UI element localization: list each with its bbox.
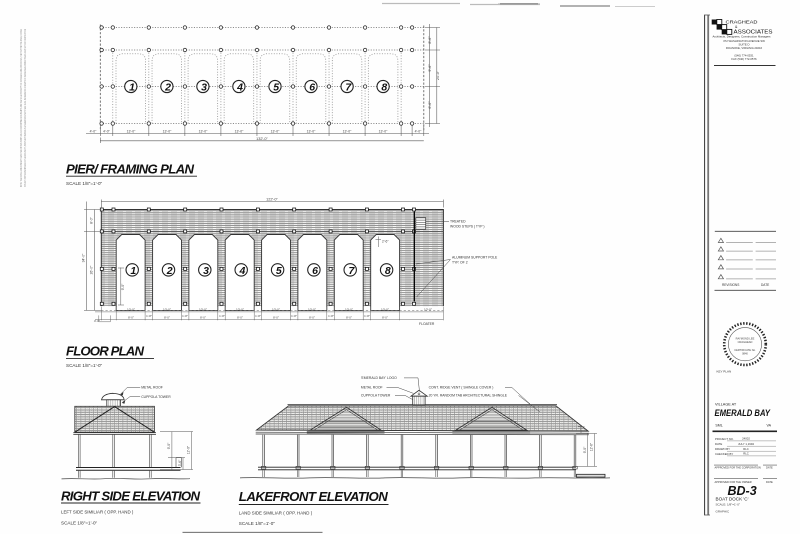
svg-text:9'-0": 9'-0" <box>167 442 171 449</box>
svg-text:CUPPOLA TOWER: CUPPOLA TOWER <box>361 394 391 398</box>
svg-text:PROJECT NO.: PROJECT NO. <box>715 437 734 441</box>
svg-text:9'-0": 9'-0" <box>583 446 587 453</box>
svg-text:SCALE 1/8"=1'-0": SCALE 1/8"=1'-0" <box>66 181 103 186</box>
svg-text:JULY 1,1994: JULY 1,1994 <box>738 442 754 446</box>
svg-text:13'-0": 13'-0" <box>163 130 172 134</box>
svg-text:6: 6 <box>309 81 315 93</box>
svg-text:9'-6": 9'-6" <box>428 64 432 72</box>
svg-text:CHECKED BY: CHECKED BY <box>715 452 733 456</box>
svg-text:6: 6 <box>312 265 318 277</box>
svg-text:SML: SML <box>715 423 722 427</box>
svg-text:CRAGHEAD: CRAGHEAD <box>738 340 753 344</box>
svg-text:RLC: RLC <box>743 452 749 456</box>
svg-text:SCALE 1/8"=1'-0": SCALE 1/8"=1'-0" <box>61 520 98 525</box>
svg-text:1'-8": 1'-8" <box>146 314 152 318</box>
svg-text:CUPPOLA TOWER: CUPPOLA TOWER <box>141 395 171 399</box>
svg-text:8'-0": 8'-0" <box>346 316 352 320</box>
svg-text:8'-0": 8'-0" <box>237 316 243 320</box>
svg-text:10'-0": 10'-0" <box>381 308 389 312</box>
svg-text:8'-0": 8'-0" <box>128 316 134 320</box>
svg-text:10'-0": 10'-0" <box>424 308 432 312</box>
svg-text:CERTIFICATE No.: CERTIFICATE No. <box>734 348 756 352</box>
svg-text:WOOD STEPS ( TYP ): WOOD STEPS ( TYP ) <box>450 224 485 228</box>
svg-text:26'-0": 26'-0" <box>90 265 94 274</box>
svg-text:LEFT SIDE SIMILIAR ( OPP. HAND: LEFT SIDE SIMILIAR ( OPP. HAND ) <box>61 509 134 514</box>
svg-text:TYP. OF 2: TYP. OF 2 <box>452 260 468 264</box>
svg-text:34'-0": 34'-0" <box>82 253 86 262</box>
svg-text:SCALE: 1/8"=1'-0": SCALE: 1/8"=1'-0" <box>716 502 740 506</box>
svg-text:13'-0": 13'-0" <box>127 130 136 134</box>
svg-text:ASSOCIATES: ASSOCIATES <box>734 29 773 35</box>
svg-text:13'-0": 13'-0" <box>307 130 316 134</box>
svg-text:3: 3 <box>201 81 207 93</box>
svg-text:BOAT DOCK 'C': BOAT DOCK 'C' <box>716 497 749 502</box>
svg-text:12'-6": 12'-6" <box>590 442 594 451</box>
svg-text:8'-0": 8'-0" <box>164 316 170 320</box>
svg-text:4'-0": 4'-0" <box>415 130 423 134</box>
svg-text:24002: 24002 <box>742 437 750 441</box>
svg-text:1'-8": 1'-8" <box>364 314 370 318</box>
svg-text:LAKEFRONT ELEVATION: LAKEFRONT ELEVATION <box>239 489 388 504</box>
svg-text:4'-0": 4'-0" <box>103 130 111 134</box>
svg-text:WITHOUT WRITTEN PERMISSION OF: WITHOUT WRITTEN PERMISSION OF THE ARCHIT… <box>23 29 27 187</box>
svg-text:132'-0": 132'-0" <box>256 137 268 141</box>
svg-text:10'-0": 10'-0" <box>345 308 353 312</box>
svg-text:8: 8 <box>385 265 391 277</box>
svg-text:DATE: DATE <box>715 442 722 446</box>
svg-text:8'-0": 8'-0" <box>90 216 94 224</box>
svg-text:RAYMOND LEE: RAYMOND LEE <box>736 337 755 341</box>
svg-text:8'-0": 8'-0" <box>382 316 388 320</box>
svg-text:1'-8": 1'-8" <box>328 314 334 318</box>
svg-text:TREATED: TREATED <box>450 219 466 223</box>
svg-text:SCALE 1/8"=1'-0": SCALE 1/8"=1'-0" <box>239 521 276 526</box>
svg-text:12'-0": 12'-0" <box>186 445 190 454</box>
svg-text:FLOATER: FLOATER <box>419 322 435 326</box>
svg-text:3'-6": 3'-6" <box>178 459 182 466</box>
svg-text:EMERALD BAY: EMERALD BAY <box>715 408 771 418</box>
svg-text:8'-0": 8'-0" <box>200 316 206 320</box>
svg-text:5: 5 <box>273 81 279 93</box>
svg-text:2: 2 <box>164 81 171 93</box>
svg-text:10'-0": 10'-0" <box>199 308 207 312</box>
svg-text:4: 4 <box>238 265 245 277</box>
svg-text:FLOOR PLAN: FLOOR PLAN <box>66 344 144 359</box>
svg-text:1'-8": 1'-8" <box>255 314 261 318</box>
svg-text:8: 8 <box>381 81 387 93</box>
svg-text:4: 4 <box>236 81 243 93</box>
svg-text:13'-0": 13'-0" <box>235 130 244 134</box>
svg-text:KEY PLAN: KEY PLAN <box>717 369 732 373</box>
svg-text:10'-0": 10'-0" <box>236 308 244 312</box>
svg-text:METAL ROOF: METAL ROOF <box>141 386 163 390</box>
svg-text:GRAPHIC: GRAPHIC <box>716 510 731 514</box>
svg-text:13'-0": 13'-0" <box>271 130 280 134</box>
svg-text:ROANOKE, VIRGINIA 24016: ROANOKE, VIRGINIA 24016 <box>726 46 763 50</box>
svg-text:'EMERALD BAY' LOGO: 'EMERALD BAY' LOGO <box>361 376 397 380</box>
svg-text:LAND SIDE SIMILIAR ( OPP. HAND: LAND SIDE SIMILIAR ( OPP. HAND ) <box>239 511 313 516</box>
svg-text:REVISIONS: REVISIONS <box>722 283 739 287</box>
svg-text:8'-6": 8'-6" <box>428 36 432 44</box>
svg-text:4'-0": 4'-0" <box>94 319 100 323</box>
svg-text:20 YR. RANDOM TAB ARCHITECTURA: 20 YR. RANDOM TAB ARCHITECTURAL SHINGLE <box>429 394 508 398</box>
svg-text:1'-8": 1'-8" <box>219 314 225 318</box>
svg-text:4'-0": 4'-0" <box>90 130 98 134</box>
svg-text:DATE: DATE <box>761 283 769 287</box>
svg-text:RLC: RLC <box>743 447 749 451</box>
svg-text:ALUMINUM SUPPORT POLE: ALUMINUM SUPPORT POLE <box>452 255 498 259</box>
svg-text:DRAWN BY: DRAWN BY <box>715 447 730 451</box>
svg-text:6'-0": 6'-0" <box>428 101 432 109</box>
svg-text:DATE: DATE <box>766 480 773 484</box>
svg-text:VA: VA <box>767 423 772 427</box>
svg-text:8'-0": 8'-0" <box>309 316 315 320</box>
svg-text:CONT. RIDGE VENT ( SHINGLE COV: CONT. RIDGE VENT ( SHINGLE COVER ) <box>429 386 494 390</box>
svg-text:1: 1 <box>130 265 136 277</box>
svg-text:1'-8": 1'-8" <box>182 314 188 318</box>
svg-text:3: 3 <box>203 265 209 277</box>
svg-text:DATE: DATE <box>766 466 773 470</box>
svg-text:8'-0": 8'-0" <box>273 316 279 320</box>
svg-text:VILLAGE AT: VILLAGE AT <box>715 402 737 406</box>
svg-text:10'-0": 10'-0" <box>308 308 316 312</box>
svg-text:PIER/ FRAMING PLAN: PIER/ FRAMING PLAN <box>66 162 194 177</box>
svg-text:2: 2 <box>166 265 173 277</box>
svg-text:10'-0": 10'-0" <box>127 308 135 312</box>
svg-text:SCALE 1/8"=1'-0": SCALE 1/8"=1'-0" <box>66 363 103 368</box>
svg-text:2'-6": 2'-6" <box>382 240 389 244</box>
svg-text:METAL ROOF: METAL ROOF <box>361 386 383 390</box>
svg-text:CRAGHEAD: CRAGHEAD <box>726 20 759 26</box>
svg-text:122'-0": 122'-0" <box>266 197 278 201</box>
svg-text:RIGHT SIDE ELEVATION: RIGHT SIDE ELEVATION <box>61 488 200 503</box>
svg-text:10'-0": 10'-0" <box>163 308 171 312</box>
svg-text:0840: 0840 <box>742 352 748 356</box>
svg-text:1'-8": 1'-8" <box>291 314 297 318</box>
svg-text:5: 5 <box>276 265 282 277</box>
svg-text:FAX (540) 772-0576: FAX (540) 772-0576 <box>731 57 757 61</box>
svg-text:13'-0": 13'-0" <box>199 130 208 134</box>
svg-text:13'-0": 13'-0" <box>343 130 352 134</box>
svg-text:24'-0": 24'-0" <box>436 70 440 80</box>
svg-text:13'-0": 13'-0" <box>379 130 388 134</box>
svg-text:1: 1 <box>129 81 135 93</box>
svg-text:APPROVED FOR THE CORPORATION: APPROVED FOR THE CORPORATION <box>715 466 761 470</box>
svg-text:9'-0": 9'-0" <box>121 283 125 290</box>
svg-text:10'-0": 10'-0" <box>272 308 280 312</box>
